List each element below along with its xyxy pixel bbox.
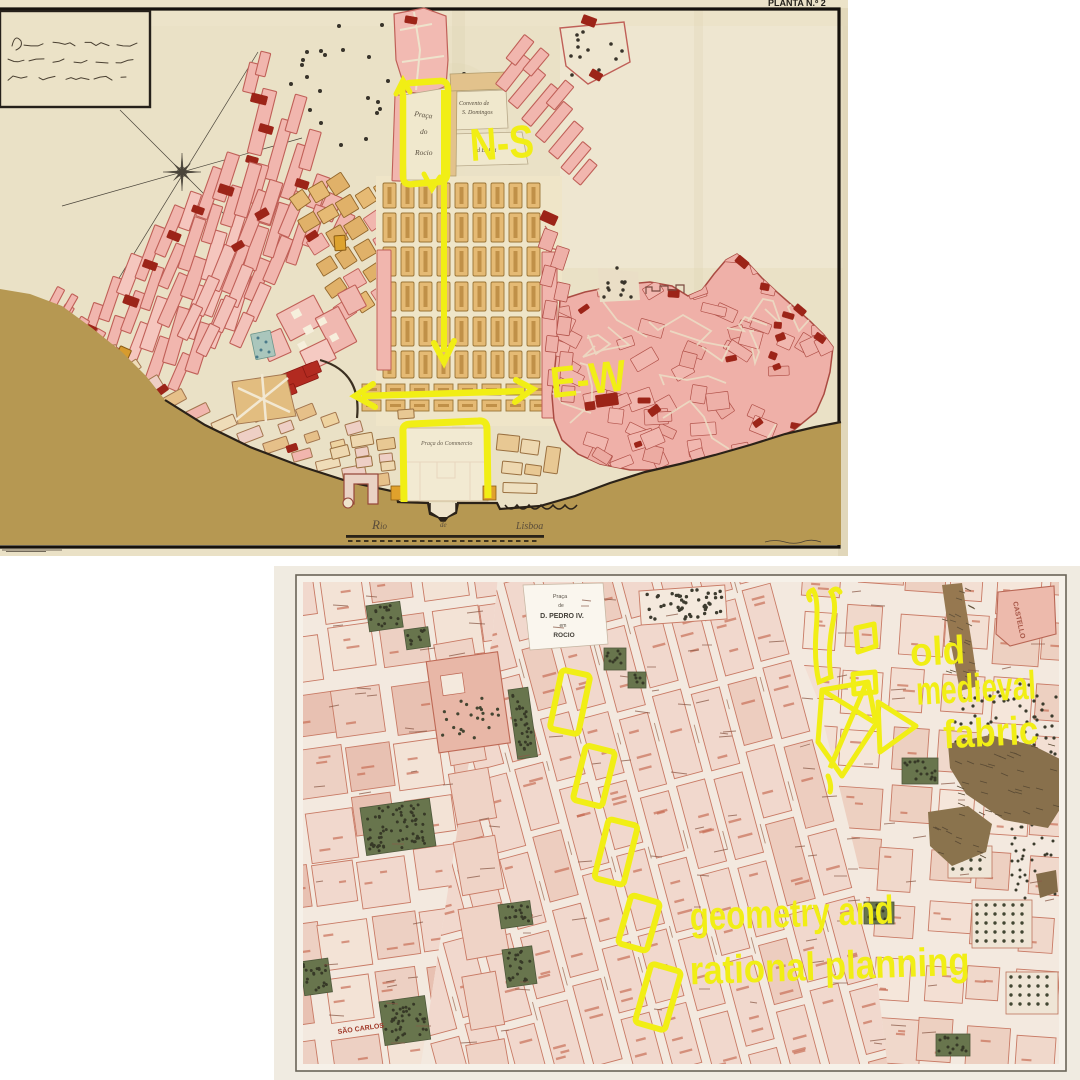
svg-text:Lisboa: Lisboa xyxy=(515,521,543,532)
svg-text:PLANTA N.º 2: PLANTA N.º 2 xyxy=(768,0,826,8)
svg-text:S. Domingos: S. Domingos xyxy=(462,110,493,116)
svg-text:N-S: N-S xyxy=(468,115,535,171)
svg-text:E-W: E-W xyxy=(548,351,629,408)
svg-text:de: de xyxy=(558,603,564,609)
svg-text:Rocio: Rocio xyxy=(414,148,433,157)
svg-text:de: de xyxy=(440,521,447,529)
svg-text:Praça: Praça xyxy=(553,594,568,600)
svg-text:do: do xyxy=(420,127,428,136)
svg-text:Praça do Commercio: Praça do Commercio xyxy=(420,441,472,447)
svg-text:geometry and: geometry and xyxy=(689,888,894,939)
svg-text:ROCIO: ROCIO xyxy=(553,632,574,639)
svg-text:D. PEDRO IV.: D. PEDRO IV. xyxy=(540,613,584,620)
svg-text:fabric: fabric xyxy=(942,708,1039,757)
svg-text:medieval: medieval xyxy=(915,664,1037,714)
svg-text:Convento de: Convento de xyxy=(459,101,489,107)
